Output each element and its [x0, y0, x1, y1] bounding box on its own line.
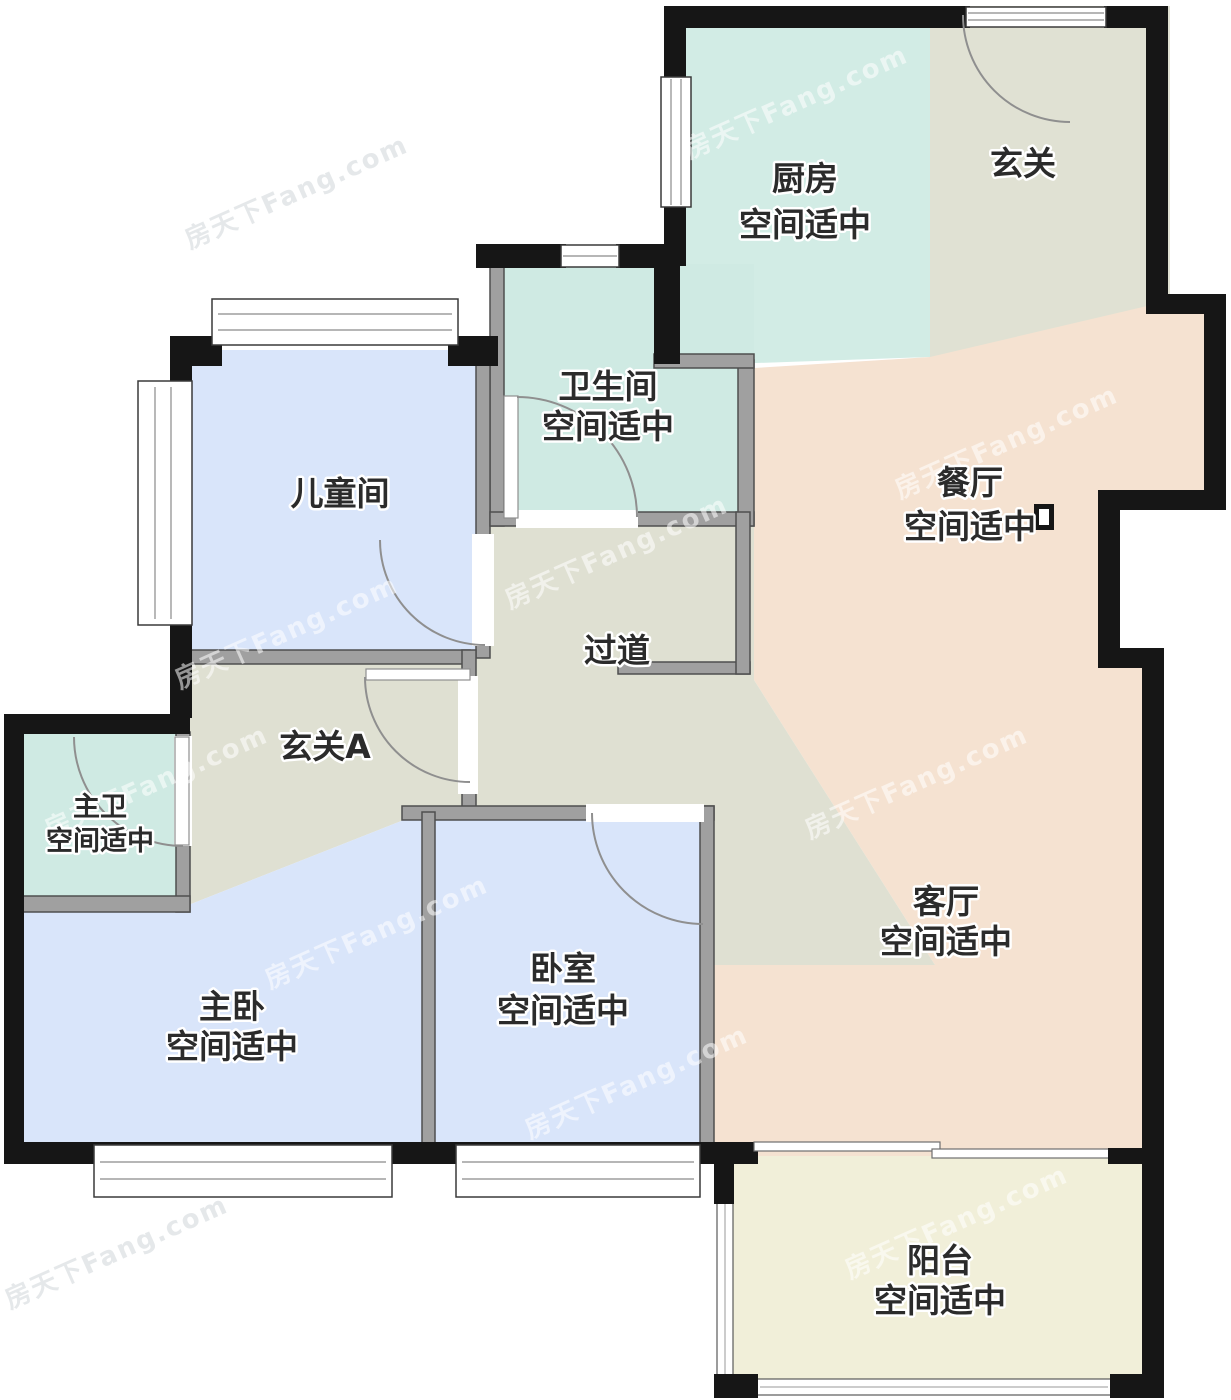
- label-master-bath: 主卫: [73, 792, 127, 823]
- label-master-bath-note: 空间适中: [46, 825, 154, 857]
- bedroom-bay-window: [456, 1145, 700, 1197]
- wall-bathroom-east: [738, 360, 754, 526]
- wall-bed-divider: [422, 812, 435, 1148]
- label-dining-note: 空间适中: [904, 507, 1036, 546]
- wall-top-kitchen: [664, 6, 970, 28]
- label-balcony: 阳台: [907, 1241, 973, 1280]
- label-entryA: 玄关A: [279, 727, 371, 766]
- label-bedroom-note: 空间适中: [497, 991, 629, 1030]
- label-living: 客厅: [913, 882, 979, 921]
- entry-door-band: [966, 7, 1106, 27]
- kids-bay-window-left: [138, 381, 192, 625]
- label-master-bed: 主卧: [199, 987, 265, 1026]
- label-bathroom: 卫生间: [559, 367, 658, 406]
- label-bedroom: 卧室: [530, 949, 596, 988]
- door-opening-bathroom: [516, 510, 638, 528]
- wall-right-upper: [1204, 294, 1226, 510]
- svg-text:房天下Fang.com: 房天下Fang.com: [180, 130, 413, 255]
- balcony-post-bl: [714, 1374, 758, 1398]
- label-entry: 玄关: [990, 144, 1056, 183]
- wall-bedroom-east: [700, 806, 714, 1148]
- label-balcony-note: 空间适中: [874, 1281, 1006, 1320]
- floor-plan: 房天下Fang.com 房天下Fang.com 房天下Fang.com 房天下F…: [0, 0, 1231, 1400]
- master-bed-bay-window: [94, 1145, 392, 1197]
- label-kitchen: 厨房: [772, 159, 838, 198]
- bathroom-window: [561, 245, 619, 267]
- column-cap-inner: [1039, 509, 1049, 525]
- bathroom-door-leaf: [504, 396, 518, 518]
- wall-left: [4, 714, 24, 1164]
- door-opening-bedroom: [586, 804, 704, 822]
- balcony-railing-left: [717, 1200, 733, 1378]
- balcony-post-tr: [1108, 1148, 1144, 1164]
- wall-master-bath-north: [4, 714, 190, 734]
- wall-bathroom-west: [490, 264, 504, 526]
- wall-right-entry: [1146, 6, 1168, 306]
- label-kitchen-note: 空间适中: [739, 205, 871, 244]
- door-opening-kids: [472, 534, 494, 646]
- label-kids: 儿童间: [291, 474, 390, 513]
- wall-master-bath-south: [16, 896, 190, 912]
- entryA-door-leaf: [366, 669, 470, 680]
- wall-hallway-east: [736, 512, 750, 674]
- balcony-railing-bottom: [756, 1379, 1112, 1395]
- label-dining: 餐厅: [937, 463, 1003, 502]
- wall-kitchen-divider: [654, 244, 680, 364]
- label-hallway: 过道: [584, 631, 650, 670]
- door-opening-entryA: [458, 676, 478, 794]
- wall-right-mid: [1098, 490, 1120, 666]
- label-master-bed-note: 空间适中: [166, 1027, 298, 1066]
- wall-kids-west-1: [170, 336, 192, 388]
- wall-kitchen-west-1: [664, 6, 686, 80]
- wall-bathroom-north-1: [476, 244, 566, 268]
- label-living-note: 空间适中: [880, 922, 1012, 961]
- balcony-post-br: [1110, 1374, 1144, 1398]
- label-bathroom-note: 空间适中: [542, 407, 674, 446]
- wall-right-lower: [1142, 648, 1164, 1398]
- svg-text:房天下Fang.com: 房天下Fang.com: [0, 1190, 233, 1315]
- kids-bay-window-top: [212, 299, 458, 345]
- balcony-post-tl: [714, 1156, 734, 1204]
